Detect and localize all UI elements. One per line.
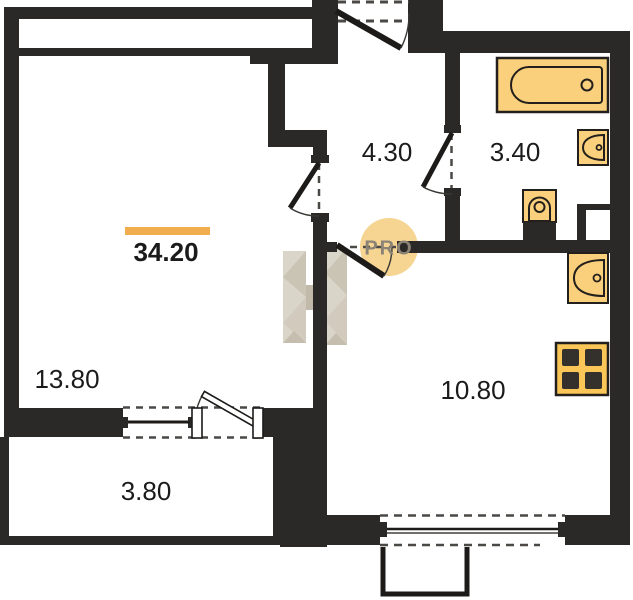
- wall-top-left-outer: [4, 7, 332, 19]
- window-cap: [377, 522, 387, 537]
- wall-window-right-seg: [262, 408, 283, 437]
- kitchen-area-label: 10.80: [440, 377, 505, 403]
- window-cap: [118, 417, 128, 428]
- toilet-pedestal: [523, 222, 556, 240]
- wall-bath-bottom: [445, 240, 611, 253]
- wall-hall-bottom-left: [327, 242, 337, 252]
- wall-entrance-left-block: [312, 0, 338, 64]
- floorplan: 34.20 13.80 3.80 4.30 3.40 10.80 PRO: [0, 0, 633, 600]
- wall-living-kitchen: [313, 222, 327, 410]
- wall-living-bottom: [4, 408, 123, 437]
- wall-balcony-right: [273, 437, 290, 545]
- entrance-door: [336, 11, 409, 48]
- wall-top-right: [443, 31, 630, 53]
- door-jamb: [192, 408, 202, 438]
- wall-right: [610, 31, 630, 545]
- bathroom-door: [423, 133, 452, 194]
- wall-balcony-bottom: [0, 536, 283, 545]
- hallway-area-label: 4.30: [362, 139, 413, 165]
- floorplan-svg: [0, 0, 633, 600]
- stove-icon: [556, 343, 608, 395]
- toilet-icon: [523, 190, 556, 240]
- wall-kitchen-bottom-right: [565, 515, 630, 545]
- wall-balcony-left: [0, 437, 9, 545]
- wall-entrance-right-block: [408, 0, 443, 53]
- wall-hall-jog: [268, 130, 327, 147]
- bathtub-icon: [497, 58, 608, 112]
- door-jamb: [444, 125, 461, 133]
- bathroom-sink-icon: [578, 130, 608, 165]
- wall-bath-left-upper: [445, 53, 460, 125]
- wall-livinghall-top: [313, 147, 327, 155]
- balcony-door: [192, 391, 263, 438]
- wall-left: [4, 7, 19, 437]
- total-area-label: 34.20: [133, 239, 198, 265]
- door-jamb: [444, 188, 461, 196]
- door-jamb: [311, 213, 329, 222]
- total-area-highlight-bar: [125, 227, 210, 235]
- wall-shaft-left: [577, 204, 586, 241]
- living-room-area-label: 13.80: [34, 366, 99, 392]
- balcony-area-label: 3.80: [121, 478, 172, 504]
- wall-hall-left-upper: [268, 64, 285, 130]
- living-hall-door: [290, 163, 319, 216]
- watermark-pro-label: PRO: [364, 238, 413, 261]
- door-jamb: [311, 155, 329, 163]
- wall-bath-left-lower: [445, 196, 460, 240]
- door-jamb: [253, 408, 263, 438]
- french-balcony-rail: [383, 547, 467, 594]
- window-cap: [558, 522, 568, 537]
- kitchen-sink-icon: [568, 253, 608, 303]
- wall-kitchen-bottom-left: [327, 515, 380, 545]
- bathroom-area-label: 3.40: [490, 139, 541, 165]
